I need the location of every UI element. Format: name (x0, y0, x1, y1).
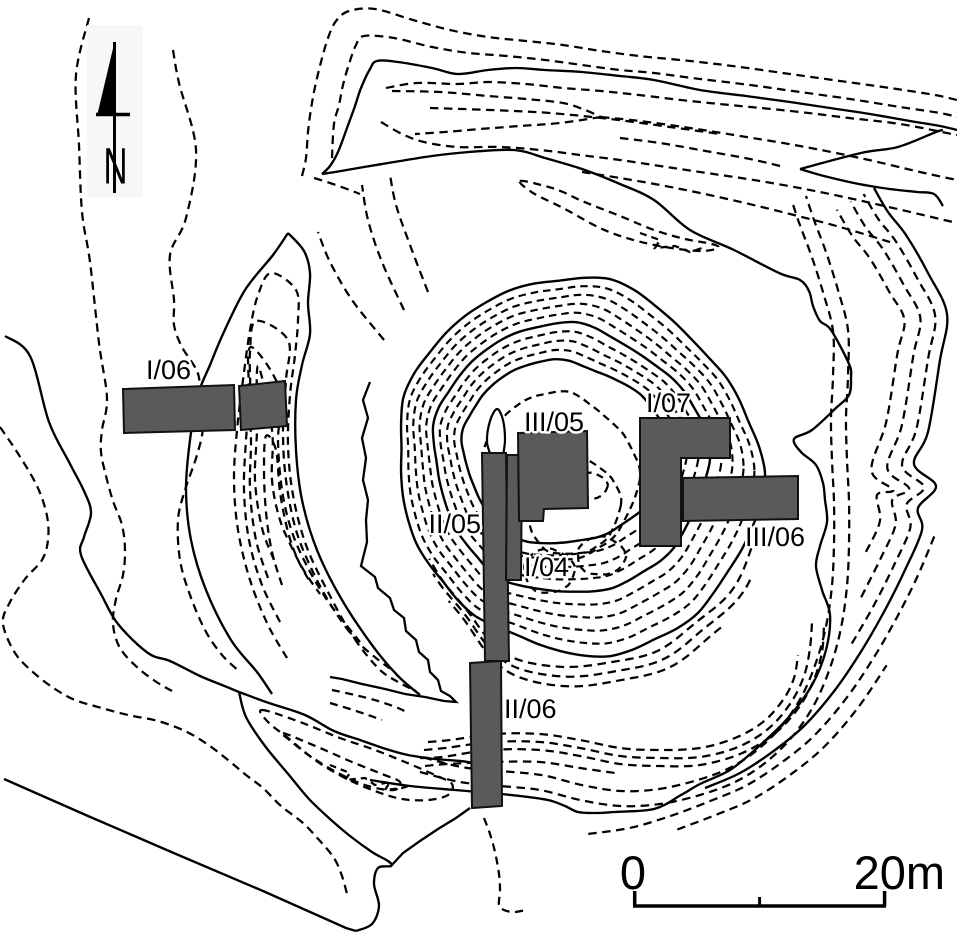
svg-text:III/05: III/05 (524, 407, 584, 437)
svg-text:I/04: I/04 (524, 552, 569, 582)
svg-text:II/06: II/06 (504, 694, 557, 724)
svg-text:I/06: I/06 (146, 355, 191, 385)
svg-text:0: 0 (620, 846, 646, 899)
svg-text:II/05: II/05 (428, 509, 481, 539)
svg-text:I/07: I/07 (646, 388, 691, 418)
svg-text:N: N (104, 138, 128, 195)
svg-text:III/06: III/06 (745, 522, 805, 552)
svg-text:20m: 20m (854, 846, 945, 899)
